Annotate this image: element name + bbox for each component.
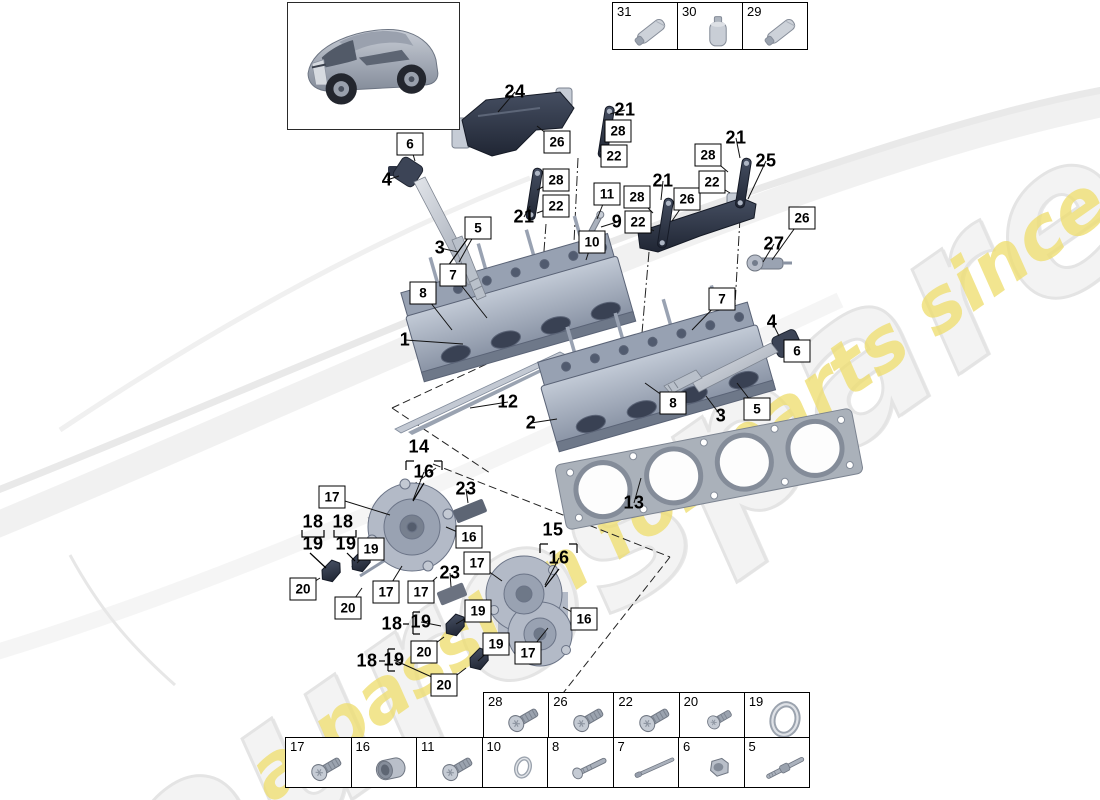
legend-cell-8[interactable]: 8	[548, 738, 614, 787]
oring-small-icon	[500, 749, 546, 787]
screw-icon	[435, 749, 481, 787]
callout-18[interactable]: 18	[302, 512, 323, 533]
part-ref: 17	[290, 739, 304, 754]
screw-small-icon	[697, 700, 743, 738]
part-ref: 8	[552, 739, 559, 754]
part-ref: 6	[683, 739, 690, 754]
legend-cell-31[interactable]: 31	[613, 3, 678, 49]
bottle-icon	[695, 11, 741, 49]
stud-long-icon	[631, 749, 677, 787]
callout-19[interactable]: 19	[483, 633, 510, 656]
fasteners-legend-row1: 2826222019	[483, 692, 810, 738]
callout-19[interactable]: 19	[302, 534, 323, 555]
callout-16[interactable]: 16	[571, 608, 598, 631]
callout-27[interactable]: 27	[763, 234, 784, 255]
callout-16[interactable]: 16	[413, 462, 434, 483]
callout-21[interactable]: 21	[652, 171, 673, 192]
callout-26[interactable]: 26	[674, 188, 701, 211]
tube-icon	[760, 11, 806, 49]
callout-17[interactable]: 17	[515, 642, 542, 665]
callout-19[interactable]: 19	[335, 534, 356, 555]
callout-28[interactable]: 28	[605, 120, 632, 143]
bolt-long-icon	[566, 749, 612, 787]
callout-17[interactable]: 17	[464, 552, 491, 575]
callout-26[interactable]: 26	[789, 207, 816, 230]
oring-icon	[762, 700, 808, 738]
vehicle-illustration	[288, 3, 456, 126]
legend-cell-26[interactable]: 26	[549, 693, 614, 738]
callout-15[interactable]: 15	[542, 520, 563, 541]
callout-28[interactable]: 28	[624, 186, 651, 209]
callout-23[interactable]: 23	[439, 563, 460, 584]
exploded-diagram	[0, 0, 1100, 800]
callout-5[interactable]: 5	[744, 398, 771, 421]
callout-23[interactable]: 23	[455, 479, 476, 500]
parts-diagram-page: eurospares a passion for parts since 198…	[0, 0, 1100, 800]
callout-18[interactable]: 18	[381, 614, 402, 635]
legend-cell-11[interactable]: 11	[417, 738, 483, 787]
legend-cell-6[interactable]: 6	[679, 738, 745, 787]
callout-12[interactable]: 12	[497, 392, 518, 413]
callout-17[interactable]: 17	[408, 581, 435, 604]
legend-cell-7[interactable]: 7	[614, 738, 680, 787]
legend-cell-5[interactable]: 5	[745, 738, 810, 787]
callout-7[interactable]: 7	[440, 264, 467, 287]
callout-19[interactable]: 19	[383, 650, 404, 671]
callout-3[interactable]: 3	[435, 238, 446, 259]
callout-16[interactable]: 16	[456, 526, 483, 549]
callout-18[interactable]: 18	[332, 512, 353, 533]
legend-cell-19[interactable]: 19	[745, 693, 809, 738]
legend-cell-30[interactable]: 30	[678, 3, 743, 49]
callout-24[interactable]: 24	[504, 82, 525, 103]
callout-21[interactable]: 21	[725, 128, 746, 149]
callout-25[interactable]: 25	[755, 151, 776, 172]
callout-20[interactable]: 20	[335, 597, 362, 620]
callout-19[interactable]: 19	[465, 600, 492, 623]
legend-cell-22[interactable]: 22	[614, 693, 679, 738]
part-ref: 16	[356, 739, 370, 754]
legend-cell-29[interactable]: 29	[743, 3, 807, 49]
callout-1[interactable]: 1	[400, 330, 411, 351]
callout-6[interactable]: 6	[784, 340, 811, 363]
screw-icon	[566, 700, 612, 738]
callout-22[interactable]: 22	[699, 171, 726, 194]
legend-cell-20[interactable]: 20	[680, 693, 745, 738]
callout-28[interactable]: 28	[695, 144, 722, 167]
part-27-sensor	[747, 255, 792, 271]
stud-collar-icon	[762, 749, 808, 787]
callout-5[interactable]: 5	[465, 217, 492, 240]
nut-icon	[697, 749, 743, 787]
callout-14[interactable]: 14	[408, 437, 429, 458]
callout-9[interactable]: 9	[612, 212, 623, 233]
callout-17[interactable]: 17	[373, 581, 400, 604]
tube-icon	[630, 11, 676, 49]
screw-icon	[501, 700, 547, 738]
callout-26[interactable]: 26	[544, 131, 571, 154]
legend-cell-10[interactable]: 10	[483, 738, 549, 787]
screw-icon	[304, 749, 350, 787]
callout-20[interactable]: 20	[411, 641, 438, 664]
callout-20[interactable]: 20	[431, 674, 458, 697]
callout-6[interactable]: 6	[397, 133, 424, 156]
callout-21[interactable]: 21	[513, 207, 534, 228]
callout-16[interactable]: 16	[548, 548, 569, 569]
callout-21[interactable]: 21	[614, 100, 635, 121]
callout-11[interactable]: 11	[594, 183, 621, 206]
callout-19[interactable]: 19	[358, 538, 385, 561]
consumables-legend: 313029	[612, 2, 808, 50]
callout-4[interactable]: 4	[382, 170, 393, 191]
part-ref: 7	[618, 739, 625, 754]
callout-18[interactable]: 18	[356, 651, 377, 672]
legend-cell-16[interactable]: 16	[352, 738, 418, 787]
callout-22[interactable]: 22	[543, 195, 570, 218]
callout-17[interactable]: 17	[319, 486, 346, 509]
callout-8[interactable]: 8	[660, 392, 687, 415]
callout-8[interactable]: 8	[410, 282, 437, 305]
callout-19[interactable]: 19	[410, 612, 431, 633]
callout-3[interactable]: 3	[716, 406, 727, 427]
callout-28[interactable]: 28	[543, 169, 570, 192]
callout-7[interactable]: 7	[709, 288, 736, 311]
callout-22[interactable]: 22	[601, 145, 628, 168]
callout-22[interactable]: 22	[625, 211, 652, 234]
screw-icon	[632, 700, 678, 738]
callout-4[interactable]: 4	[767, 312, 778, 333]
vehicle-thumbnail	[287, 2, 460, 130]
part-ref: 11	[421, 739, 435, 754]
callout-13[interactable]: 13	[623, 493, 644, 514]
part-ref: 10	[487, 739, 501, 754]
callout-20[interactable]: 20	[290, 578, 317, 601]
legend-cell-17[interactable]: 17	[286, 738, 352, 787]
sleeve-icon	[369, 749, 415, 787]
legend-cell-28[interactable]: 28	[484, 693, 549, 738]
fasteners-legend-row2: 171611108765	[285, 737, 810, 788]
callout-10[interactable]: 10	[579, 231, 606, 254]
callout-2[interactable]: 2	[526, 413, 537, 434]
part-ref: 5	[749, 739, 756, 754]
